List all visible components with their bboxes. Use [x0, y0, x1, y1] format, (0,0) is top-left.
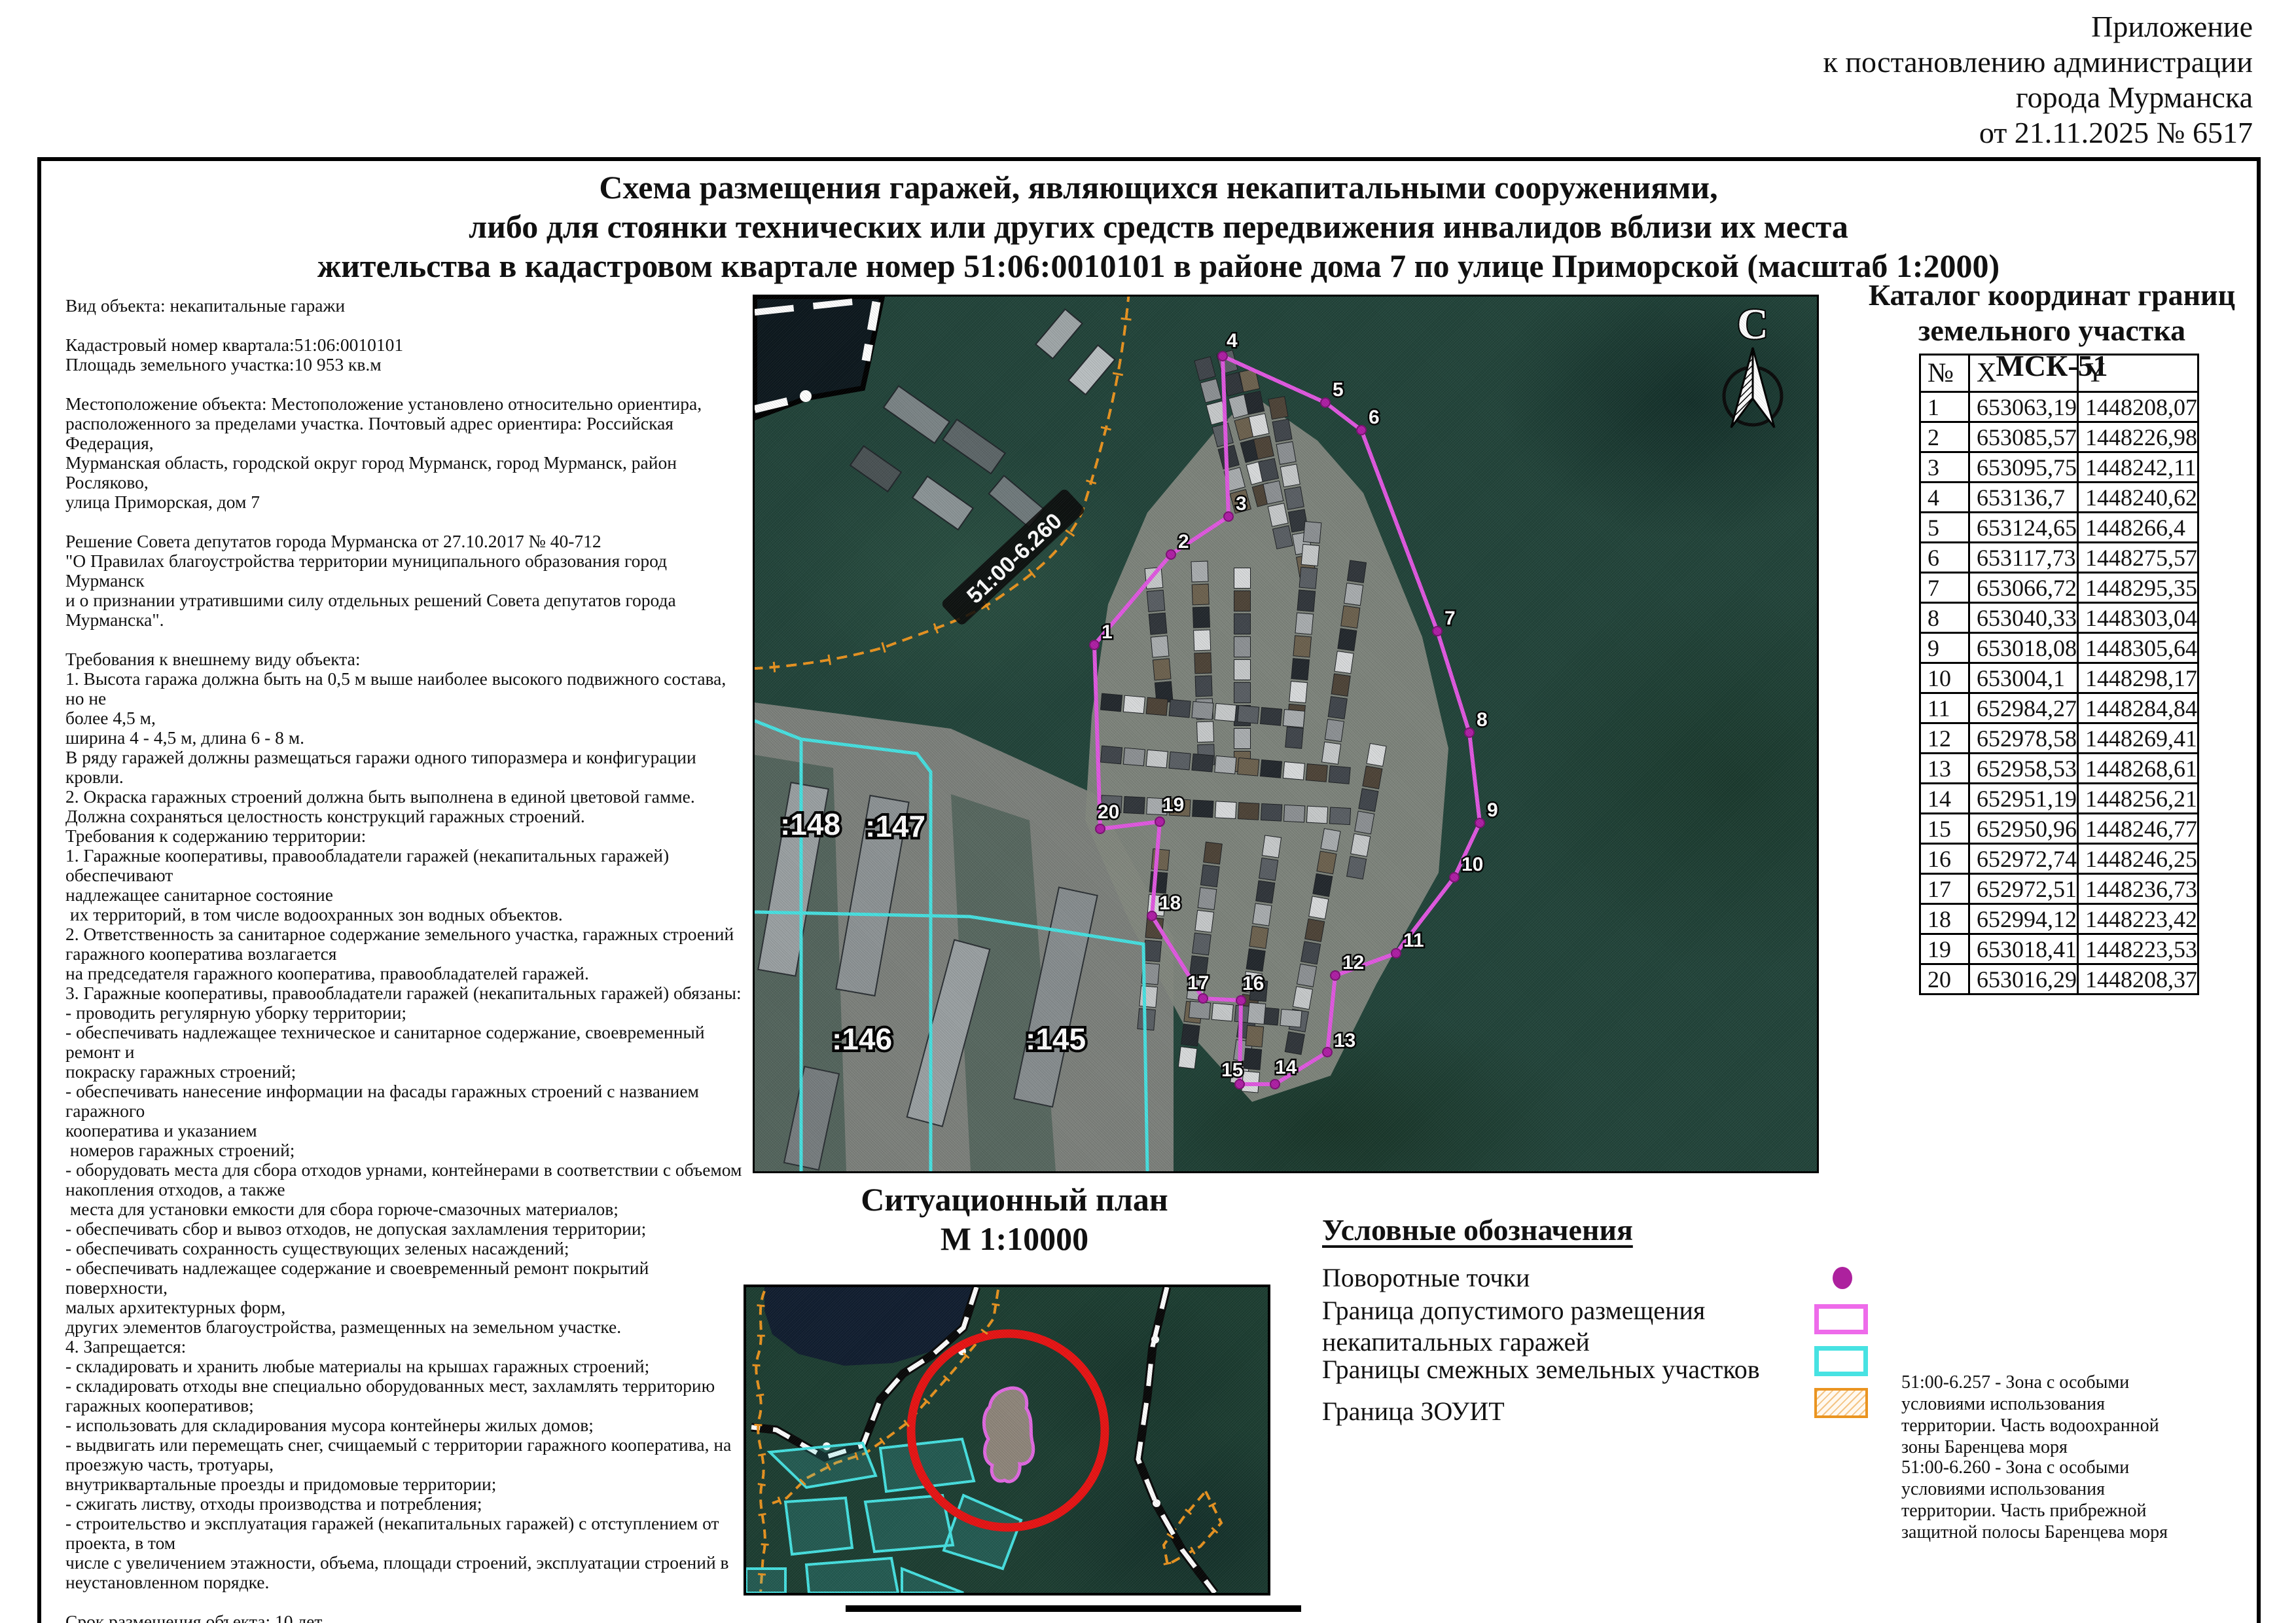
vertex-number-label: 1	[1102, 621, 1113, 643]
cell-y: 1448223,53	[2078, 934, 2198, 964]
table-row: 20 653016,29 1448208,37	[1920, 964, 2198, 994]
cell-x: 653124,65	[1969, 513, 2078, 543]
cell-y: 1448284,84	[2078, 693, 2198, 723]
doc-line: 1. Высота гаража должна быть на 0,5 м вы…	[65, 669, 747, 708]
cell-n: 7	[1920, 573, 1969, 603]
cell-x: 653117,73	[1969, 543, 2078, 573]
cell-n: 15	[1920, 814, 1969, 844]
table-row: 9 653018,08 1448305,64	[1920, 633, 2198, 663]
table-row: 17 652972,51 1448236,73	[1920, 874, 2198, 904]
turning-point-swatch-icon	[1833, 1267, 1852, 1289]
vertex-number-label: 17	[1187, 972, 1209, 994]
doc-line	[65, 630, 747, 649]
cell-x: 653040,33	[1969, 603, 2078, 633]
legend-item-zouit-label: Граница ЗОУИТ	[1322, 1396, 1505, 1427]
table-row: 12 652978,58 1448269,41	[1920, 723, 2198, 754]
cell-y: 1448246,25	[2078, 844, 2198, 874]
cell-n: 13	[1920, 754, 1969, 784]
zone-note-257: 51:00-6.257 - Зона с особыми условиями и…	[1901, 1372, 2197, 1458]
doc-line: - строительство и эксплуатация гаражей (…	[65, 1514, 747, 1533]
cell-x: 653136,7	[1969, 483, 2078, 513]
cell-n: 10	[1920, 663, 1969, 693]
vertex-number-label: 5	[1333, 379, 1344, 401]
doc-line: гаражного кооператива возлагается	[65, 944, 747, 964]
svg-text:51:00-6.260: 51:00-6.260	[962, 509, 1067, 609]
col-header-y: Y	[2078, 355, 2198, 392]
table-row: 18 652994,12 1448223,42	[1920, 904, 2198, 934]
table-row: 11 652984,27 1448284,84	[1920, 693, 2198, 723]
cell-y: 1448240,62	[2078, 483, 2198, 513]
doc-line: Площадь земельного участка:10 953 кв.м	[65, 355, 747, 374]
cell-x: 652951,19	[1969, 784, 2078, 814]
doc-line: кооператива и указанием	[65, 1121, 747, 1140]
cell-x: 653016,29	[1969, 964, 2078, 994]
header-line: города Мурманска	[1467, 80, 2253, 115]
doc-line: малых архитектурных форм,	[65, 1298, 747, 1317]
parcel-label: :146	[832, 1022, 892, 1056]
document-page: Приложение к постановлению администрации…	[0, 0, 2296, 1623]
doc-line: расположенного за пределами участка. Поч…	[65, 414, 747, 453]
cell-n: 6	[1920, 543, 1969, 573]
doc-line: Требования к содержанию территории:	[65, 826, 747, 846]
vertex-number-label: 13	[1334, 1030, 1355, 1051]
coordinate-table: № X Y 1 653063,19 1448208,07 2 653085,57…	[1919, 354, 2199, 995]
cell-y: 1448246,77	[2078, 814, 2198, 844]
cell-x: 653018,41	[1969, 934, 2078, 964]
cell-n: 14	[1920, 784, 1969, 814]
table-header-row: № X Y	[1920, 355, 2198, 392]
zone-note-260: 51:00-6.260 - Зона с особыми условиями и…	[1901, 1457, 2197, 1543]
header-line: к постановлению администрации	[1467, 45, 2253, 80]
vertex-number-label: 9	[1487, 799, 1498, 821]
doc-line: числе с увеличением этажности, объема, п…	[65, 1553, 747, 1573]
col-header-n: №	[1920, 355, 1969, 392]
doc-line	[65, 1592, 747, 1612]
doc-line: места для установки емкости для сбора го…	[65, 1199, 747, 1219]
cell-x: 652984,27	[1969, 693, 2078, 723]
vertex-number-label: 14	[1275, 1057, 1297, 1078]
vertex-number-label: 3	[1236, 493, 1247, 515]
map-graphics: 51:00-6.260 :148:147:146:145 12345678910…	[755, 297, 1817, 1171]
doc-line: - обеспечивать надлежащее содержание и с…	[65, 1258, 747, 1298]
doc-line	[65, 512, 747, 532]
doc-line: Требования к внешнему виду объекта:	[65, 649, 747, 669]
doc-line: - обеспечивать нанесение информации на ф…	[65, 1082, 747, 1121]
table-row: 19 653018,41 1448223,53	[1920, 934, 2198, 964]
cell-n: 9	[1920, 633, 1969, 663]
cell-x: 652972,74	[1969, 844, 2078, 874]
parcel-label: :148	[780, 807, 840, 841]
doc-line: Кадастровый номер квартала:51:06:0010101	[65, 335, 747, 355]
svg-text:С: С	[1737, 301, 1768, 348]
vertex-number-label: 11	[1403, 930, 1424, 951]
table-row: 4 653136,7 1448240,62	[1920, 483, 2198, 513]
cell-x: 652950,96	[1969, 814, 2078, 844]
inset-street-grid	[746, 1439, 1021, 1593]
vertex-number-label: 6	[1369, 407, 1380, 428]
cell-x: 653095,75	[1969, 452, 2078, 483]
doc-line: ширина 4 - 4,5 м, длина 6 - 8 м.	[65, 728, 747, 748]
cell-n: 5	[1920, 513, 1969, 543]
doc-line: накопления отходов, а также	[65, 1180, 747, 1199]
vertex-number-label: 12	[1342, 952, 1364, 974]
cell-n: 4	[1920, 483, 1969, 513]
placement-scheme-map: 51:00-6.260 :148:147:146:145 12345678910…	[753, 295, 1819, 1173]
vertex-number-label: 8	[1477, 709, 1488, 731]
cell-y: 1448242,11	[2078, 452, 2198, 483]
parcel-label: :147	[865, 809, 925, 843]
doc-line	[65, 316, 747, 335]
cell-x: 653066,72	[1969, 573, 2078, 603]
cell-n: 19	[1920, 934, 1969, 964]
title-line: либо для стоянки технических или других …	[62, 207, 2255, 246]
header-line: от 21.11.2025 № 6517	[1467, 115, 2253, 151]
doc-line: - проводить регулярную уборку территории…	[65, 1003, 747, 1023]
legend-item-adjacent-label: Границы смежных земельных участков	[1322, 1354, 1760, 1385]
cell-y: 1448256,21	[2078, 784, 2198, 814]
cell-y: 1448236,73	[2078, 874, 2198, 904]
doc-line: Должна сохраняться целостность конструкц…	[65, 807, 747, 826]
doc-line: проекта, в том	[65, 1533, 747, 1553]
doc-line: Местоположение объекта: Местоположение у…	[65, 394, 747, 414]
doc-line: Срок размещения объекта: 10 лет	[65, 1612, 747, 1623]
doc-line: - сжигать листву, отходы производства и …	[65, 1494, 747, 1514]
situational-plan-map	[744, 1285, 1270, 1596]
cell-n: 1	[1920, 392, 1969, 422]
cell-n: 3	[1920, 452, 1969, 483]
page-title: Схема размещения гаражей, являющихся нек…	[62, 168, 2255, 285]
cell-x: 652978,58	[1969, 723, 2078, 754]
cell-x: 653004,1	[1969, 663, 2078, 693]
adjacent-parcels-swatch-icon	[1814, 1346, 1868, 1376]
inset-site-boundary	[984, 1388, 1033, 1482]
doc-line: В ряду гаражей должны размещаться гаражи…	[65, 748, 747, 787]
table-row: 13 652958,53 1448268,61	[1920, 754, 2198, 784]
cell-x: 653018,08	[1969, 633, 2078, 663]
vertex-number-label: 16	[1242, 973, 1264, 994]
object-description: Вид объекта: некапитальные гаражиКадастр…	[65, 296, 747, 1623]
table-row: 3 653095,75 1448242,11	[1920, 452, 2198, 483]
vertex-number-label: 4	[1227, 330, 1238, 352]
cell-n: 11	[1920, 693, 1969, 723]
doc-line: надлежащее санитарное состояние	[65, 885, 747, 905]
cell-y: 1448305,64	[2078, 633, 2198, 663]
table-row: 15 652950,96 1448246,77	[1920, 814, 2198, 844]
table-row: 14 652951,19 1448256,21	[1920, 784, 2198, 814]
doc-line: - обеспечивать надлежащее техническое и …	[65, 1023, 747, 1062]
legend-heading: Условные обозначения	[1322, 1213, 1633, 1247]
cell-x: 652972,51	[1969, 874, 2078, 904]
header-line: Приложение	[1467, 9, 2253, 45]
table-row: 6 653117,73 1448275,57	[1920, 543, 2198, 573]
vertex-number-label: 18	[1159, 892, 1181, 914]
vertex-number-label: 19	[1162, 794, 1184, 816]
cell-n: 16	[1920, 844, 1969, 874]
title-line: Схема размещения гаражей, являющихся нек…	[62, 168, 2255, 207]
cell-y: 1448269,41	[2078, 723, 2198, 754]
doc-line: 4. Запрещается:	[65, 1337, 747, 1357]
doc-line: и о признании утратившими силу отдельных…	[65, 591, 747, 630]
vertex-number-label: 10	[1462, 854, 1483, 875]
doc-line: их территорий, в том числе водоохранных …	[65, 905, 747, 924]
doc-line: номеров гаражных строений;	[65, 1140, 747, 1160]
scale-bar	[846, 1605, 1301, 1612]
doc-line: - обеспечивать сохранность существующих …	[65, 1239, 747, 1258]
doc-line: - обеспечивать сбор и вывоз отходов, не …	[65, 1219, 747, 1239]
table-row: 7 653066,72 1448295,35	[1920, 573, 2198, 603]
doc-line: Решение Совета депутатов города Мурманск…	[65, 532, 747, 551]
doc-line: проезжую часть, тротуары,	[65, 1455, 747, 1474]
doc-line: 1. Гаражные кооперативы, правообладатели…	[65, 846, 747, 885]
doc-line: - оборудовать места для сбора отходов ур…	[65, 1160, 747, 1180]
buildings-shore	[850, 309, 1115, 530]
doc-line: Вид объекта: некапитальные гаражи	[65, 296, 747, 316]
doc-line: - использовать для складирования мусора …	[65, 1415, 747, 1435]
vertex-number-label: 7	[1444, 608, 1456, 629]
cell-y: 1448226,98	[2078, 422, 2198, 452]
cell-n: 18	[1920, 904, 1969, 934]
doc-line: - выдвигать или перемещать снег, счищаем…	[65, 1435, 747, 1455]
vertex-number-label: 15	[1221, 1059, 1243, 1081]
doc-line	[65, 374, 747, 394]
doc-line: гаражных кооперативов;	[65, 1396, 747, 1415]
table-row: 16 652972,74 1448246,25	[1920, 844, 2198, 874]
vertex-number-label: 20	[1098, 801, 1119, 823]
cell-y: 1448275,57	[2078, 543, 2198, 573]
doc-line: внутриквартальные проезды и придомовые т…	[65, 1474, 747, 1494]
inset-graphics	[746, 1287, 1268, 1593]
table-row: 10 653004,1 1448298,17	[1920, 663, 2198, 693]
cell-n: 8	[1920, 603, 1969, 633]
cell-y: 1448208,07	[2078, 392, 2198, 422]
cell-x: 653063,19	[1969, 392, 2078, 422]
cell-x: 652958,53	[1969, 754, 2078, 784]
cell-y: 1448303,04	[2078, 603, 2198, 633]
cell-n: 2	[1920, 422, 1969, 452]
cell-y: 1448208,37	[2078, 964, 2198, 994]
doc-line: улица Приморская, дом 7	[65, 492, 747, 512]
doc-line: покраску гаражных строений;	[65, 1062, 747, 1082]
cell-y: 1448266,4	[2078, 513, 2198, 543]
cell-n: 20	[1920, 964, 1969, 994]
cell-n: 17	[1920, 874, 1969, 904]
table-row: 8 653040,33 1448303,04	[1920, 603, 2198, 633]
doc-line: на председателя гаражного кооператива, п…	[65, 964, 747, 983]
cell-y: 1448298,17	[2078, 663, 2198, 693]
doc-line: - складировать и хранить любые материалы…	[65, 1357, 747, 1376]
zouit-swatch-icon	[1814, 1388, 1868, 1418]
doc-line: неустановленном порядке.	[65, 1573, 747, 1592]
legend-item-boundary-label: Граница допустимого размещения некапитал…	[1322, 1295, 1705, 1358]
cell-y: 1448295,35	[2078, 573, 2198, 603]
doc-line: 3. Гаражные кооперативы, правообладатели…	[65, 983, 747, 1003]
doc-line: 2. Окраска гаражных строений должна быть…	[65, 787, 747, 807]
cell-y: 1448223,42	[2078, 904, 2198, 934]
vertex-number-label: 2	[1178, 531, 1189, 553]
compass-north-icon: С	[1724, 301, 1782, 428]
table-row: 5 653124,65 1448266,4	[1920, 513, 2198, 543]
parcel-label: :145	[1026, 1022, 1086, 1056]
doc-line: "О Правилах благоустройства территории м…	[65, 551, 747, 591]
cell-n: 12	[1920, 723, 1969, 754]
doc-line: других элементов благоустройства, размещ…	[65, 1317, 747, 1337]
doc-line: более 4,5 м,	[65, 708, 747, 728]
situational-plan-title: Ситуационный план М 1:10000	[753, 1180, 1276, 1258]
cell-y: 1448268,61	[2078, 754, 2198, 784]
doc-line: 2. Ответственность за санитарное содержа…	[65, 924, 747, 944]
doc-line: - складировать отходы вне специально обо…	[65, 1376, 747, 1396]
col-header-x: X	[1969, 355, 2078, 392]
cell-x: 652994,12	[1969, 904, 2078, 934]
cell-x: 653085,57	[1969, 422, 2078, 452]
table-row: 1 653063,19 1448208,07	[1920, 392, 2198, 422]
doc-line: Мурманская область, городской округ горо…	[65, 453, 747, 492]
appendix-header: Приложение к постановлению администрации…	[1467, 9, 2253, 151]
placement-boundary-swatch-icon	[1814, 1304, 1868, 1334]
table-row: 2 653085,57 1448226,98	[1920, 422, 2198, 452]
legend-item-points-label: Поворотные точки	[1322, 1262, 1530, 1294]
